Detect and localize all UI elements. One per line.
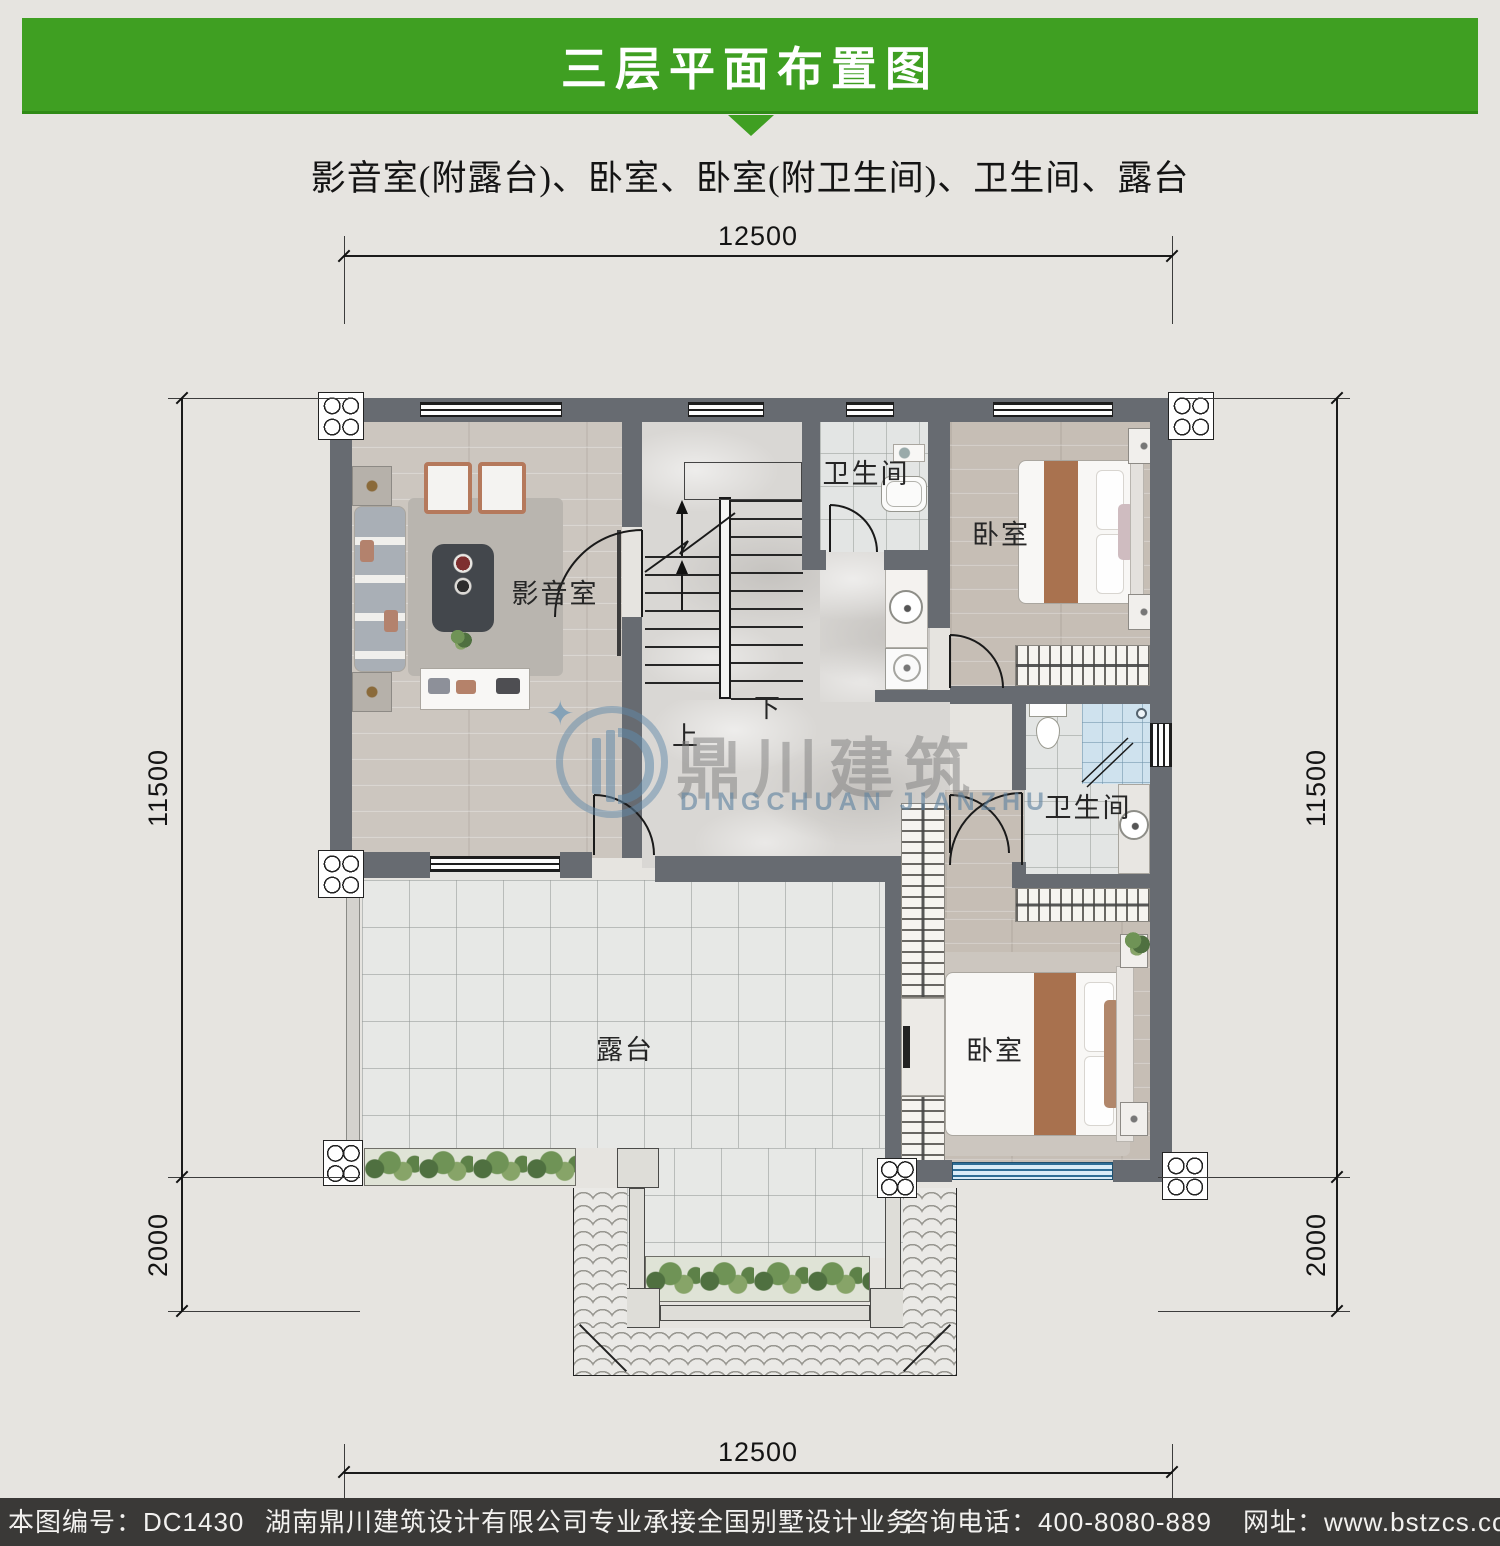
wall-vanity-south bbox=[875, 690, 947, 702]
dim-left-main-label: 11500 bbox=[143, 728, 173, 848]
armchair-2 bbox=[478, 462, 526, 514]
window-bath1-north bbox=[846, 402, 894, 417]
wall-stairs-bath1 bbox=[802, 420, 820, 570]
bench-pillow-3 bbox=[496, 678, 520, 694]
table-plant bbox=[450, 628, 472, 650]
wall-bedroom2-west bbox=[885, 862, 901, 1170]
terrace-planter-left bbox=[364, 1148, 576, 1186]
stair-run-right bbox=[731, 500, 803, 700]
terrace-planter-bottom bbox=[645, 1256, 870, 1302]
toilet-tank bbox=[1029, 703, 1067, 717]
corner-column-w bbox=[318, 850, 364, 898]
side-table-2 bbox=[352, 672, 392, 712]
dim-top-line bbox=[344, 255, 1172, 257]
label-media-room: 影音室 bbox=[495, 574, 615, 608]
dim-left-lower-label: 2000 bbox=[143, 1185, 173, 1305]
dim-right-ext-1 bbox=[1185, 398, 1350, 399]
projector-screen bbox=[617, 530, 621, 656]
window-bedroom2-south bbox=[952, 1162, 1113, 1180]
bench-pillow-2 bbox=[456, 680, 476, 694]
sofa-accent-pillow-2 bbox=[384, 610, 398, 632]
path-right-strip bbox=[903, 1188, 957, 1328]
corner-column-bedroom2-sw bbox=[877, 1158, 917, 1198]
wall-south-hall bbox=[655, 856, 901, 882]
dim-right-main-label: 11500 bbox=[1301, 728, 1331, 848]
wall-east bbox=[1150, 398, 1172, 1182]
watermark-logo-bar-1 bbox=[592, 738, 601, 794]
bed1-headboard bbox=[1130, 456, 1144, 608]
plan-subtitle: 影音室(附露台)、卧室、卧室(附卫生间)、卫生间、露台 bbox=[0, 150, 1500, 194]
banner-pointer-icon bbox=[728, 115, 774, 136]
stair-landing-outline bbox=[684, 462, 802, 500]
label-bath1: 卫生间 bbox=[820, 456, 912, 486]
wall-bath2-west-upper bbox=[1012, 702, 1026, 790]
dim-bottom-label: 12500 bbox=[600, 1436, 916, 1468]
footer-phone: 咨询电话：400-8080-889 bbox=[903, 1498, 1212, 1546]
label-terrace: 露台 bbox=[560, 1030, 690, 1064]
watermark-sparkle-icon: ✦ bbox=[546, 694, 575, 734]
terrace-left-railing bbox=[346, 896, 360, 1150]
window-media-north bbox=[420, 402, 562, 417]
dim-left-ext-3 bbox=[168, 1311, 360, 1312]
bed2-blanket bbox=[1034, 973, 1076, 1135]
stair-run-left bbox=[645, 556, 719, 700]
window-bath2-east bbox=[1150, 723, 1172, 767]
corner-column-nw bbox=[318, 392, 364, 440]
wall-bath1-south-1 bbox=[802, 550, 826, 570]
terrace-pillar-1 bbox=[617, 1148, 659, 1188]
floor-plan-page: { "colors": { "accent": "#3f9f22", "acce… bbox=[0, 0, 1500, 1546]
sofa bbox=[354, 506, 406, 672]
watermark-logo-bar-2 bbox=[606, 730, 615, 802]
window-stairs-north bbox=[688, 402, 764, 417]
stair-stringer bbox=[719, 497, 731, 699]
wall-bedroom1-south bbox=[950, 686, 1150, 704]
bench-pillow-1 bbox=[428, 678, 450, 694]
wall-corridor-east-upper bbox=[928, 420, 950, 628]
label-bedroom1: 卧室 bbox=[968, 516, 1034, 548]
wall-bath1-south-2 bbox=[884, 550, 930, 570]
tv-icon bbox=[903, 1026, 910, 1068]
corner-column-ne bbox=[1168, 392, 1214, 440]
bedroom1-wardrobe bbox=[1015, 645, 1150, 686]
terrace-lower-bottom-railing bbox=[660, 1305, 870, 1321]
footer-company: 湖南鼎川建筑设计有限公司专业承接全国别墅设计业务 bbox=[265, 1498, 913, 1546]
window-media-south-sliding bbox=[430, 856, 560, 872]
watermark-en-text: DINGCHUAN JIANZHU bbox=[680, 788, 1050, 817]
shower-head-icon bbox=[1136, 708, 1147, 719]
terrace-floor bbox=[362, 880, 885, 1148]
dim-right-ext-2 bbox=[1158, 1177, 1350, 1178]
armchair-1 bbox=[424, 462, 472, 514]
page-title: 三层平面布置图 bbox=[22, 18, 1478, 114]
bed1-blanket bbox=[1044, 461, 1078, 603]
side-table-1 bbox=[352, 466, 392, 506]
dim-right-lower-label: 2000 bbox=[1301, 1185, 1331, 1305]
washing-machine-drum bbox=[893, 654, 921, 682]
window-bedroom1-north bbox=[993, 402, 1113, 417]
footer-website: 网址：www.bstzcs.com bbox=[1243, 1498, 1500, 1546]
wall-bath2-south bbox=[1012, 874, 1150, 888]
wall-south-media-2 bbox=[560, 852, 592, 878]
dim-right-ext-3 bbox=[1158, 1311, 1350, 1312]
path-left-strip bbox=[573, 1188, 627, 1328]
dim-left-ext-1 bbox=[168, 398, 352, 399]
dim-top-ext-left bbox=[344, 236, 345, 324]
footer-plan-number: 本图编号：DC1430 bbox=[8, 1498, 244, 1546]
wall-west bbox=[330, 398, 352, 874]
label-bedroom2: 卧室 bbox=[962, 1032, 1028, 1064]
corner-column-se bbox=[1162, 1152, 1208, 1200]
coffee-table bbox=[432, 544, 494, 632]
dim-top-ext-right bbox=[1172, 236, 1173, 324]
dim-bottom-line bbox=[344, 1472, 1172, 1474]
terrace-lower-floor bbox=[627, 1148, 903, 1258]
vanity-basin bbox=[889, 590, 923, 624]
sofa-accent-pillow-1 bbox=[360, 540, 374, 562]
dim-top-label: 12500 bbox=[600, 220, 916, 252]
path-bottom-apron bbox=[573, 1328, 957, 1376]
bed2-plant bbox=[1124, 930, 1150, 956]
bed2-nightstand-bottom bbox=[1120, 1102, 1148, 1136]
terrace-lower-right-railing bbox=[885, 1188, 901, 1290]
bedroom2-north-wardrobe bbox=[1015, 888, 1150, 922]
label-bath2: 卫生间 bbox=[1042, 790, 1134, 820]
corner-column-sw bbox=[323, 1140, 363, 1186]
terrace-lower-left-railing bbox=[629, 1188, 645, 1290]
wall-media-stairs-upper bbox=[622, 420, 642, 527]
dim-left-ext-2 bbox=[168, 1177, 360, 1178]
bedroom2-west-wardrobe-1 bbox=[901, 803, 945, 998]
